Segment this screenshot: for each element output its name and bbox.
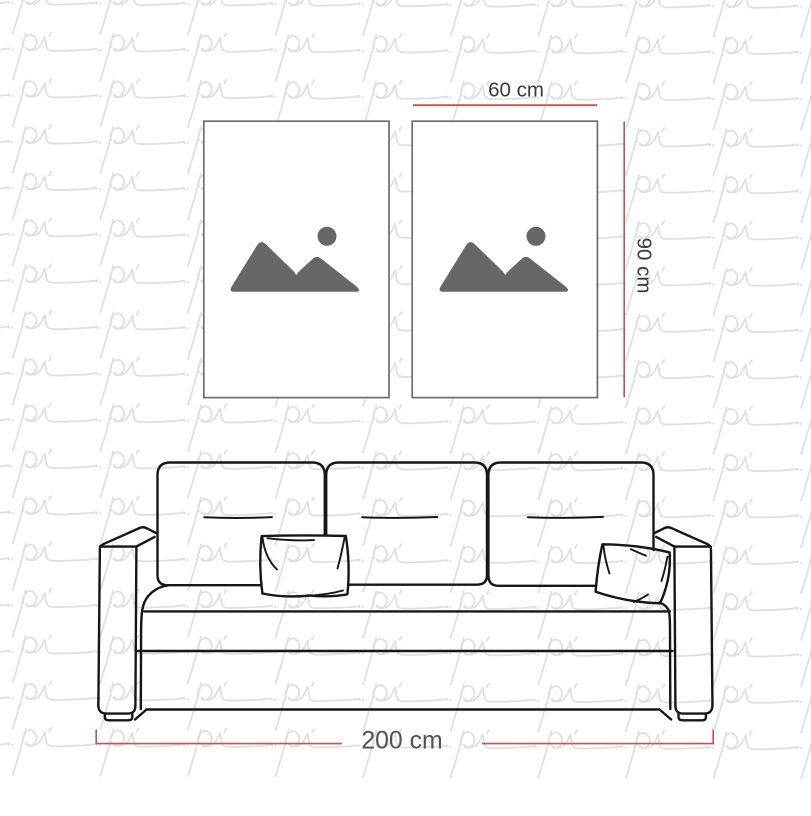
- svg-text:200 cm: 200 cm: [361, 728, 442, 755]
- svg-text:60 cm: 60 cm: [488, 79, 544, 102]
- svg-text:90 cm: 90 cm: [633, 238, 656, 294]
